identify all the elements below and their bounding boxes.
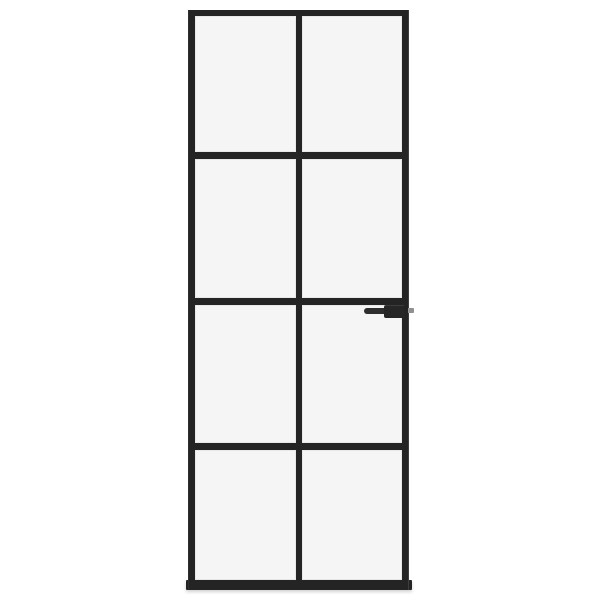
glass-door [188,10,409,590]
door-bottom-rail [186,580,412,590]
glass-pane [195,159,296,298]
glass-pane [302,305,403,443]
glass-pane [302,450,403,580]
product-photo-canvas [0,0,600,600]
glass-pane [195,450,296,580]
glass-pane [195,305,296,443]
door-latch-bolt-icon [408,308,414,313]
glass-pane [302,159,403,298]
door-glass-grid [188,10,409,590]
glass-pane [195,16,296,152]
door-handle-body [384,305,404,318]
glass-pane [302,16,403,152]
